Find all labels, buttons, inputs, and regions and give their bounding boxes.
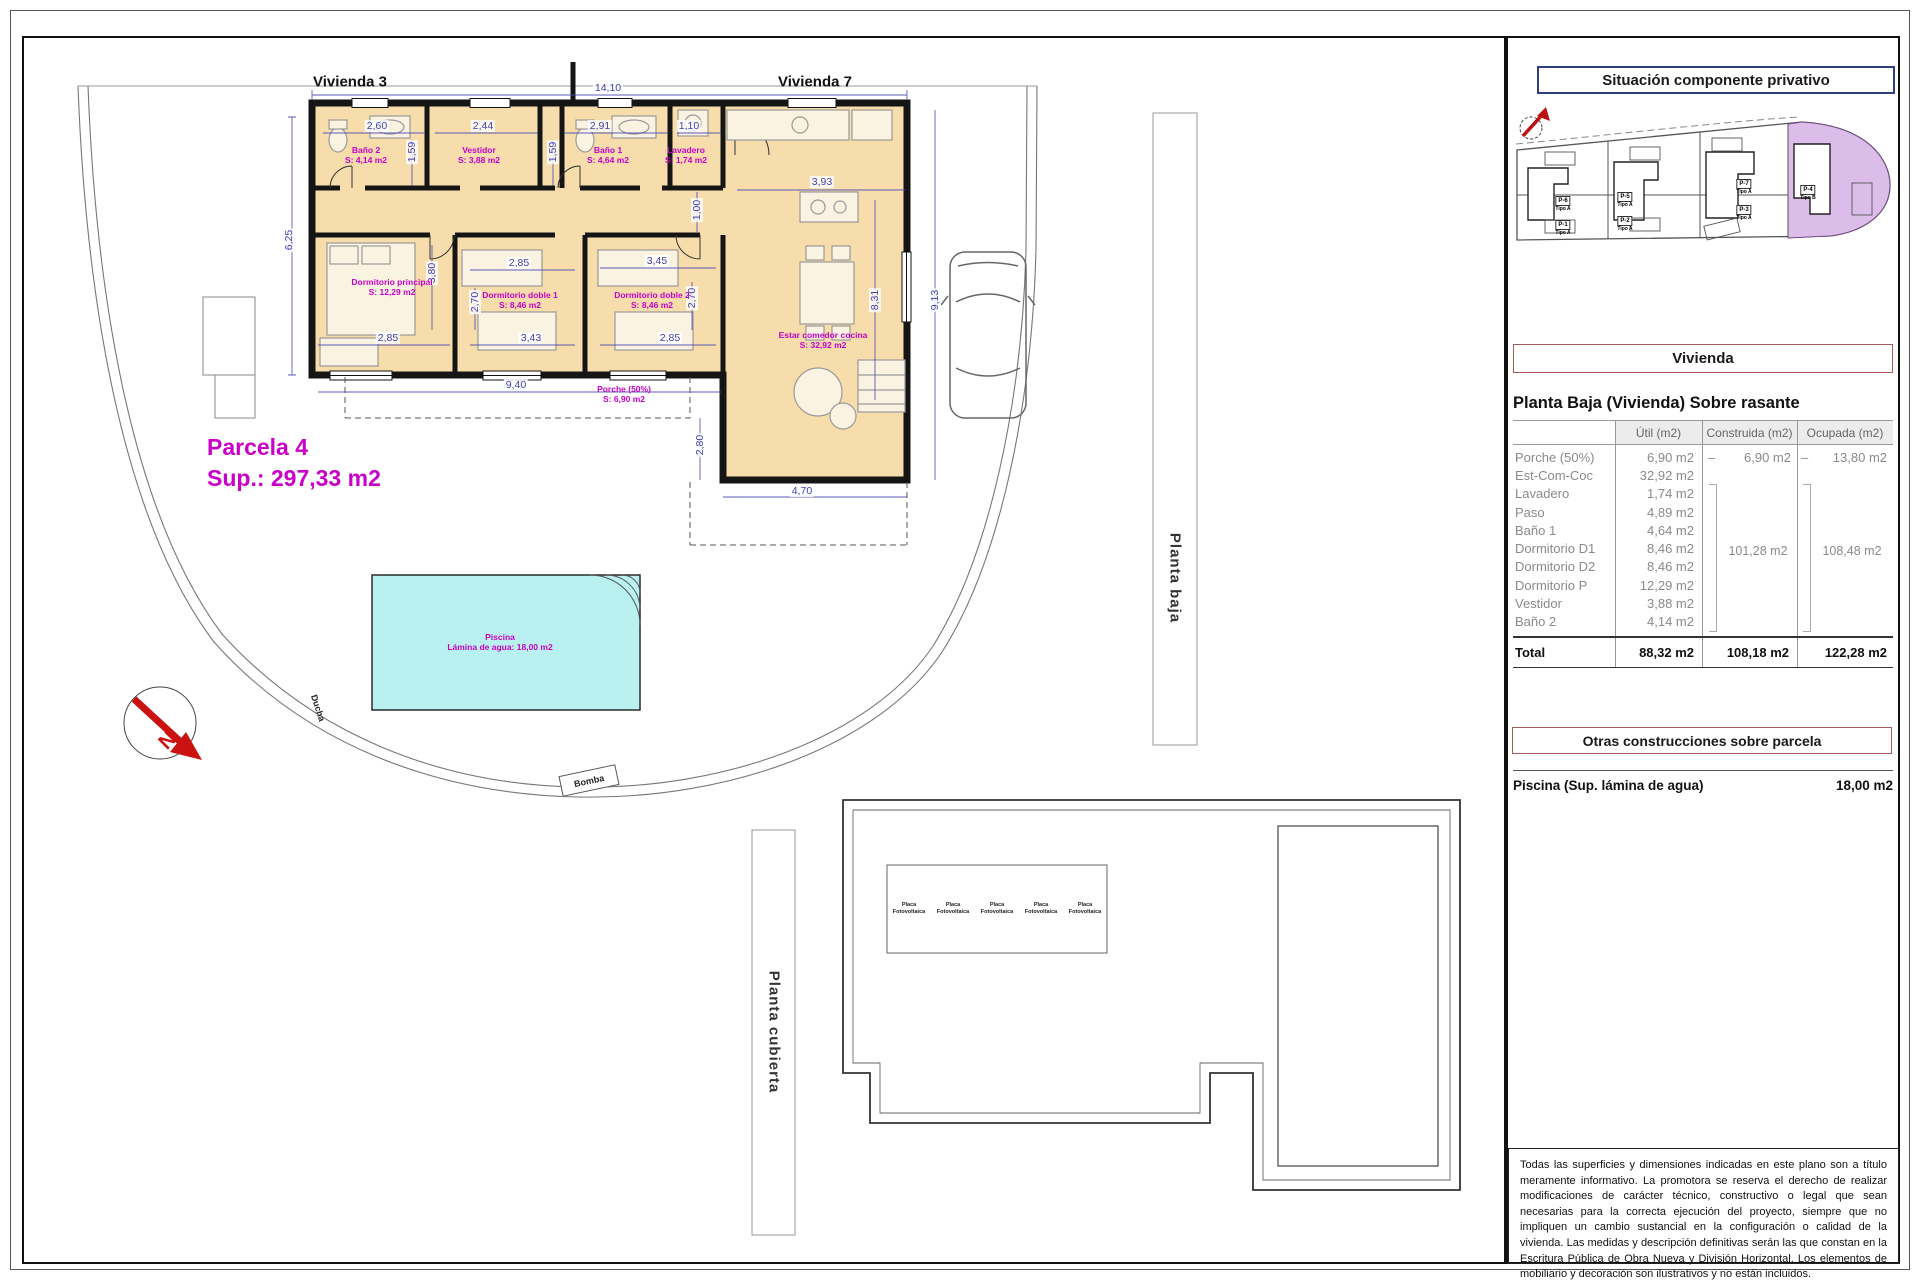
row-util: 12,29 m2 — [1615, 578, 1702, 593]
vivienda-header-box: Vivienda — [1513, 344, 1893, 373]
room-area: S: 32,92 m2 — [779, 340, 868, 350]
dimension-label: 2,80 — [694, 433, 706, 457]
row-label: Est-Com-Coc — [1513, 468, 1615, 483]
dimension-label: 9,40 — [504, 379, 528, 391]
parcel-label-p-3: P-3Tipo A — [1736, 199, 1751, 221]
solar-panel-label: Placa Fotovoltaica — [1020, 902, 1062, 916]
room-area: S: 1,74 m2 — [665, 155, 707, 165]
room-area: S: 6,90 m2 — [597, 394, 651, 404]
row-util: 4,89 m2 — [1615, 505, 1702, 520]
parcel-label-p-6: P-6Tipo A — [1555, 190, 1570, 212]
parcel-tipo: Tipo B — [1800, 196, 1815, 201]
piscina-row: Piscina (Sup. lámina de agua) 18,00 m2 — [1513, 770, 1893, 793]
parcel-label-p-5: P-5Tipo A — [1617, 186, 1632, 208]
row-util: 3,88 m2 — [1615, 596, 1702, 611]
total-util: 88,32 m2 — [1615, 645, 1702, 660]
sitemap-title-box: Situación componente privativo — [1537, 66, 1895, 94]
parcel-id: P-3 — [1736, 205, 1751, 215]
parcel-tipo: Tipo A — [1555, 207, 1570, 212]
total-construida: 108,18 m2 — [1702, 645, 1797, 660]
room-label: Dormitorio doble 2S: 8,46 m2 — [614, 290, 690, 310]
dimension-label: 1,00 — [691, 198, 703, 222]
dimension-label: 2,44 — [471, 120, 495, 132]
table-header-rule — [1513, 444, 1893, 445]
value: 13,80 m2 — [1833, 450, 1887, 465]
otras-header-box: Otras construcciones sobre parcela — [1512, 727, 1892, 754]
dimension-label: 2,85 — [658, 332, 682, 344]
parcel-id: P-1 — [1555, 220, 1570, 230]
panel-separator — [1504, 36, 1508, 1264]
dimension-label: 2,85 — [507, 257, 531, 269]
table-row: Vestidor3,88 m2 — [1513, 594, 1893, 612]
room-area: S: 8,46 m2 — [482, 300, 558, 310]
room-label: Baño 2S: 4,14 m2 — [345, 145, 387, 165]
row-label: Vestidor — [1513, 596, 1615, 611]
room-name: Baño 1 — [587, 145, 629, 155]
dimension-label: 3,93 — [810, 176, 834, 188]
row-util: 6,90 m2 — [1615, 450, 1702, 465]
col-header-ocupada: Ocupada (m2) — [1797, 421, 1893, 444]
room-area: S: 4,64 m2 — [587, 155, 629, 165]
table-body: Porche (50%)6,90 m2–6,90 m2–13,80 m2Est-… — [1513, 448, 1893, 631]
parcel-tipo: Tipo A — [1736, 190, 1751, 195]
room-label: Baño 1S: 4,64 m2 — [587, 145, 629, 165]
table-row: Porche (50%)6,90 m2–6,90 m2–13,80 m2 — [1513, 448, 1893, 466]
room-label: VestidorS: 3,88 m2 — [458, 145, 500, 165]
solar-panel-label: Placa Fotovoltaica — [1064, 902, 1106, 916]
row-util: 32,92 m2 — [1615, 468, 1702, 483]
room-label: Estar comedor cocinaS: 32,92 m2 — [779, 330, 868, 350]
room-name: Estar comedor cocina — [779, 330, 868, 340]
table-row: Dormitorio P12,29 m2 — [1513, 576, 1893, 594]
total-label: Total — [1513, 645, 1615, 660]
value: 6,90 m2 — [1744, 450, 1791, 465]
row-label: Dormitorio D2 — [1513, 559, 1615, 574]
ocupada-bracket — [1810, 484, 1811, 632]
col-header-util: Útil (m2) — [1615, 421, 1702, 444]
construida-group-value: 101,28 m2 — [1721, 544, 1795, 558]
table-row: Dormitorio D28,46 m2 — [1513, 558, 1893, 576]
room-area: S: 4,14 m2 — [345, 155, 387, 165]
dimension-label: 1,59 — [406, 140, 418, 164]
dimension-label: 2,70 — [469, 290, 481, 314]
room-area: S: 12,29 m2 — [351, 287, 432, 297]
table-row: Paso4,89 m2 — [1513, 503, 1893, 521]
plan-sheet: Vivienda 3 Vivienda 7 Parcela 4 Sup.: 29… — [0, 0, 1920, 1280]
dimension-label: 3,45 — [645, 255, 669, 267]
dimension-label: 2,60 — [365, 120, 389, 132]
row-util: 1,74 m2 — [1615, 486, 1702, 501]
row-label: Porche (50%) — [1513, 450, 1615, 465]
row-label: Lavadero — [1513, 486, 1615, 501]
row-util: 4,14 m2 — [1615, 614, 1702, 629]
vivienda-3-label: Vivienda 3 — [313, 74, 387, 91]
piscina-label: Piscina (Sup. lámina de agua) — [1513, 778, 1704, 793]
row-label: Baño 1 — [1513, 523, 1615, 538]
room-name: Vestidor — [458, 145, 500, 155]
parcel-tipo: Tipo A — [1555, 231, 1570, 236]
parcel-id: P-4 — [1800, 185, 1815, 195]
parcel-label-p-7: P-7Tipo A — [1736, 173, 1751, 195]
parcel-id: P-5 — [1617, 192, 1632, 202]
row-label: Baño 2 — [1513, 614, 1615, 629]
table-row: Est-Com-Coc32,92 m2 — [1513, 466, 1893, 484]
parcel-tipo: Tipo A — [1736, 216, 1751, 221]
bracket-hook — [1709, 631, 1717, 632]
dimension-label: 14,10 — [593, 82, 623, 94]
room-name: Piscina — [447, 632, 552, 642]
room-name: Dormitorio doble 2 — [614, 290, 690, 300]
row-label: Dormitorio P — [1513, 578, 1615, 593]
row-ocupada: –13,80 m2 — [1797, 450, 1893, 465]
dash: – — [1801, 450, 1808, 465]
bracket-hook — [1803, 484, 1811, 485]
total-ocupada: 122,28 m2 — [1797, 645, 1893, 660]
table-row: Baño 24,14 m2 — [1513, 613, 1893, 631]
dimension-label: 2,85 — [376, 332, 400, 344]
table-total-row: Total 88,32 m2 108,18 m2 122,28 m2 — [1513, 636, 1893, 668]
row-construida: –6,90 m2 — [1702, 450, 1797, 465]
dimension-label: 3,43 — [519, 332, 543, 344]
parcela-label: Parcela 4 Sup.: 297,33 m2 — [207, 432, 381, 494]
room-name: Porche (50%) — [597, 384, 651, 394]
parcel-id: P-2 — [1617, 216, 1632, 226]
room-label: PiscinaLámina de agua: 18,00 m2 — [447, 632, 552, 652]
parcel-tipo: Tipo A — [1617, 227, 1632, 232]
dimension-label: 1,10 — [677, 120, 701, 132]
disclaimer-text: Todas las superficies y dimensiones indi… — [1508, 1148, 1899, 1264]
dimension-label: 1,59 — [547, 140, 559, 164]
room-label: Dormitorio principalS: 12,29 m2 — [351, 277, 432, 297]
solar-panel-label: Placa Fotovoltaica — [888, 902, 930, 916]
parcel-label-p-1: P-1Tipo A — [1555, 214, 1570, 236]
dimension-label: 2,91 — [588, 120, 612, 132]
room-label: LavaderoS: 1,74 m2 — [665, 145, 707, 165]
parcel-label-p-4: P-4Tipo B — [1800, 179, 1815, 201]
row-util: 4,64 m2 — [1615, 523, 1702, 538]
solar-panel-label: Placa Fotovoltaica — [932, 902, 974, 916]
parcel-label-p-2: P-2Tipo A — [1617, 210, 1632, 232]
room-area: S: 3,88 m2 — [458, 155, 500, 165]
piscina-value: 18,00 m2 — [1836, 778, 1893, 793]
parcel-id: P-6 — [1555, 196, 1570, 206]
room-name: Baño 2 — [345, 145, 387, 155]
bracket-hook — [1709, 484, 1717, 485]
room-label: Dormitorio doble 1S: 8,46 m2 — [482, 290, 558, 310]
room-name: Lavadero — [665, 145, 707, 155]
table-row: Lavadero1,74 m2 — [1513, 485, 1893, 503]
dimension-label: 8,31 — [869, 288, 881, 312]
room-label: Porche (50%)S: 6,90 m2 — [597, 384, 651, 404]
planta-cubierta-band-label: Planta cubierta — [765, 971, 782, 1094]
row-label: Paso — [1513, 505, 1615, 520]
parcela-sup: Sup.: 297,33 m2 — [207, 463, 381, 494]
vivienda-7-label: Vivienda 7 — [778, 74, 852, 91]
areas-table: Útil (m2) Construida (m2) Ocupada (m2) P… — [1513, 420, 1893, 668]
row-util: 8,46 m2 — [1615, 541, 1702, 556]
room-area: Lámina de agua: 18,00 m2 — [447, 642, 552, 652]
dimension-label: 9,13 — [929, 288, 941, 312]
room-name: Dormitorio doble 1 — [482, 290, 558, 300]
construida-bracket — [1716, 484, 1717, 632]
row-label: Dormitorio D1 — [1513, 541, 1615, 556]
col-header-construida: Construida (m2) — [1702, 421, 1797, 444]
dimension-label: 6,25 — [283, 228, 295, 252]
row-util: 8,46 m2 — [1615, 559, 1702, 574]
room-name: Dormitorio principal — [351, 277, 432, 287]
bracket-hook — [1803, 631, 1811, 632]
room-area: S: 8,46 m2 — [614, 300, 690, 310]
parcel-id: P-7 — [1736, 179, 1751, 189]
planta-baja-band-label: Planta baja — [1167, 533, 1184, 623]
ocupada-group-value: 108,48 m2 — [1813, 544, 1891, 558]
dimension-label: 4,70 — [790, 485, 814, 497]
table-section-title: Planta Baja (Vivienda) Sobre rasante — [1513, 394, 1893, 413]
table-row: Baño 14,64 m2 — [1513, 521, 1893, 539]
dash: – — [1708, 450, 1715, 465]
parcela-name: Parcela 4 — [207, 432, 381, 463]
parcel-tipo: Tipo A — [1617, 203, 1632, 208]
solar-panel-label: Placa Fotovoltaica — [976, 902, 1018, 916]
